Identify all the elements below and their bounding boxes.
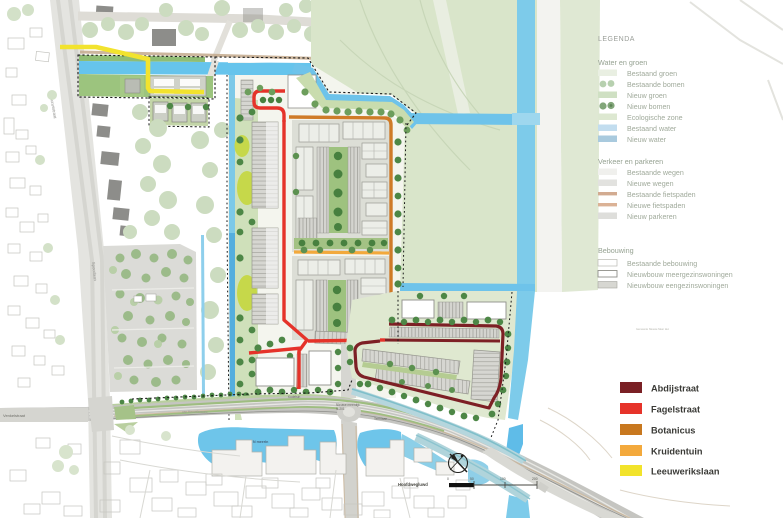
svg-text:Fagelstraat: Fagelstraat <box>651 405 700 415</box>
svg-text:Nieuwe fietspaden: Nieuwe fietspaden <box>627 202 685 210</box>
svg-text:Bestaande fietspaden: Bestaande fietspaden <box>627 191 696 199</box>
svg-text:Termlaan: Termlaan <box>374 417 387 421</box>
svg-text:50: 50 <box>470 477 474 481</box>
svg-text:Ecologische zone: Ecologische zone <box>627 114 683 122</box>
svg-text:Water en groen: Water en groen <box>598 58 647 67</box>
svg-text:Nieuwe wegen: Nieuwe wegen <box>627 180 674 188</box>
svg-text:Bestaande bebouwing: Bestaande bebouwing <box>627 260 697 268</box>
svg-text:Verkeer en parkeren: Verkeer en parkeren <box>598 157 663 166</box>
svg-text:Nieuwbouw meergezinswoningen: Nieuwbouw meergezinswoningen <box>627 271 733 279</box>
svg-text:Gemeente Nieuwe Meer dec: Gemeente Nieuwe Meer dec <box>636 327 670 331</box>
svg-text:LEGENDA: LEGENDA <box>598 36 635 43</box>
svg-text:Abdijstraat: Abdijstraat <box>651 384 699 394</box>
svg-text:0: 0 <box>447 477 449 481</box>
svg-text:Nieuw bomen: Nieuw bomen <box>627 103 670 111</box>
svg-text:Kudelsln: Kudelsln <box>288 395 300 399</box>
svg-text:200: 200 <box>532 477 538 481</box>
svg-text:N meerln: N meerln <box>253 440 268 444</box>
svg-text:Nieuw groen: Nieuw groen <box>627 92 667 100</box>
svg-text:Bestaande wegen: Bestaande wegen <box>627 169 684 177</box>
svg-text:100: 100 <box>500 477 506 481</box>
svg-text:Bestaand groen: Bestaand groen <box>627 70 677 78</box>
svg-text:Bestaande bomen: Bestaande bomen <box>627 81 685 89</box>
svg-text:Nieuw water: Nieuw water <box>627 136 667 144</box>
svg-text:Bebouwing: Bebouwing <box>598 246 634 255</box>
svg-text:Leeuwerikslaan: Leeuwerikslaan <box>651 467 720 477</box>
svg-text:Botanicus: Botanicus <box>651 426 695 436</box>
svg-text:Nieuw parkeren: Nieuw parkeren <box>627 213 677 221</box>
svg-text:Venkelstraat: Venkelstraat <box>3 413 26 418</box>
svg-text:Bestaand water: Bestaand water <box>627 125 677 133</box>
svg-text:N-201: N-201 <box>336 407 345 411</box>
svg-text:van Heuvelenweg: van Heuvelenweg <box>182 410 208 414</box>
svg-text:Nieuwbouw eengezinswoningen: Nieuwbouw eengezinswoningen <box>627 282 728 290</box>
svg-text:Hoofdwegluwd: Hoofdwegluwd <box>398 482 428 487</box>
svg-text:Kruidentuin: Kruidentuin <box>651 447 703 457</box>
